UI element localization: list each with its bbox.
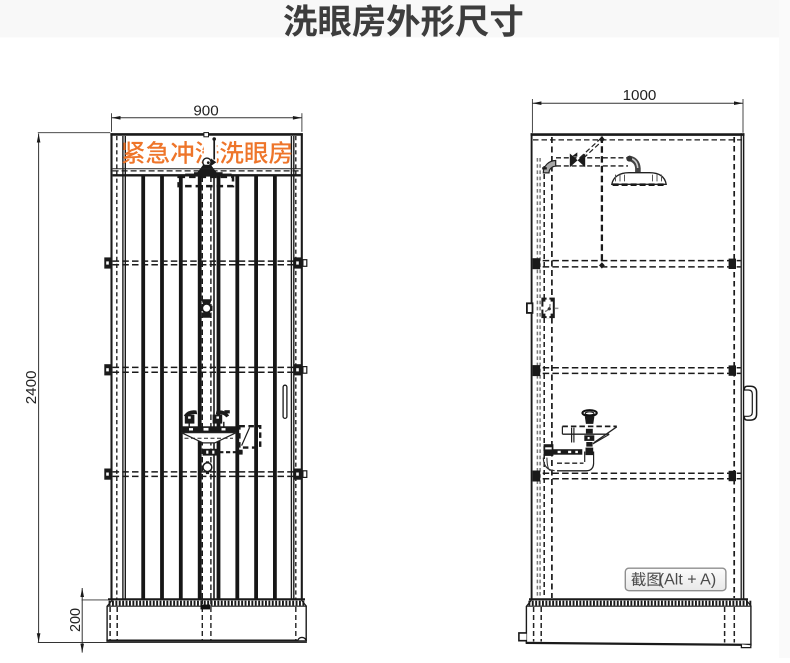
svg-text:1000: 1000	[623, 87, 657, 104]
svg-text:2400: 2400	[23, 371, 40, 405]
svg-text:(Alt + A): (Alt + A)	[659, 571, 716, 588]
svg-text:900: 900	[193, 102, 218, 119]
